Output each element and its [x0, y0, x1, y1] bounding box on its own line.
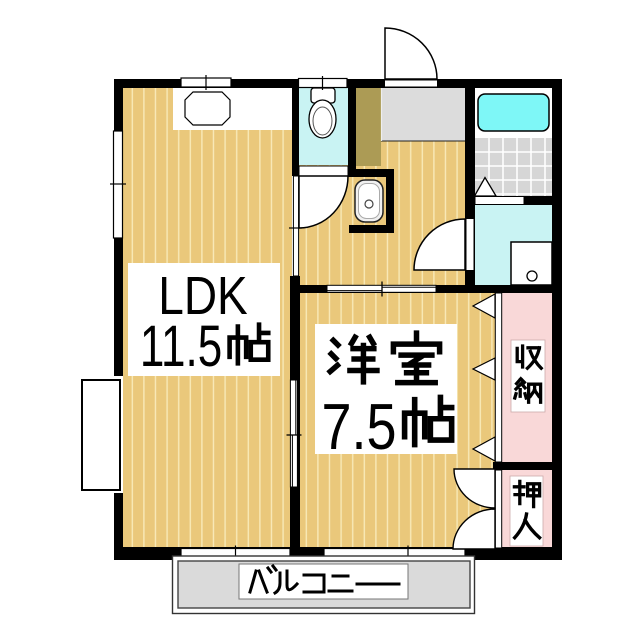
svg-text:7.5: 7.5 — [321, 390, 396, 463]
svg-text:11.5: 11.5 — [140, 313, 222, 379]
